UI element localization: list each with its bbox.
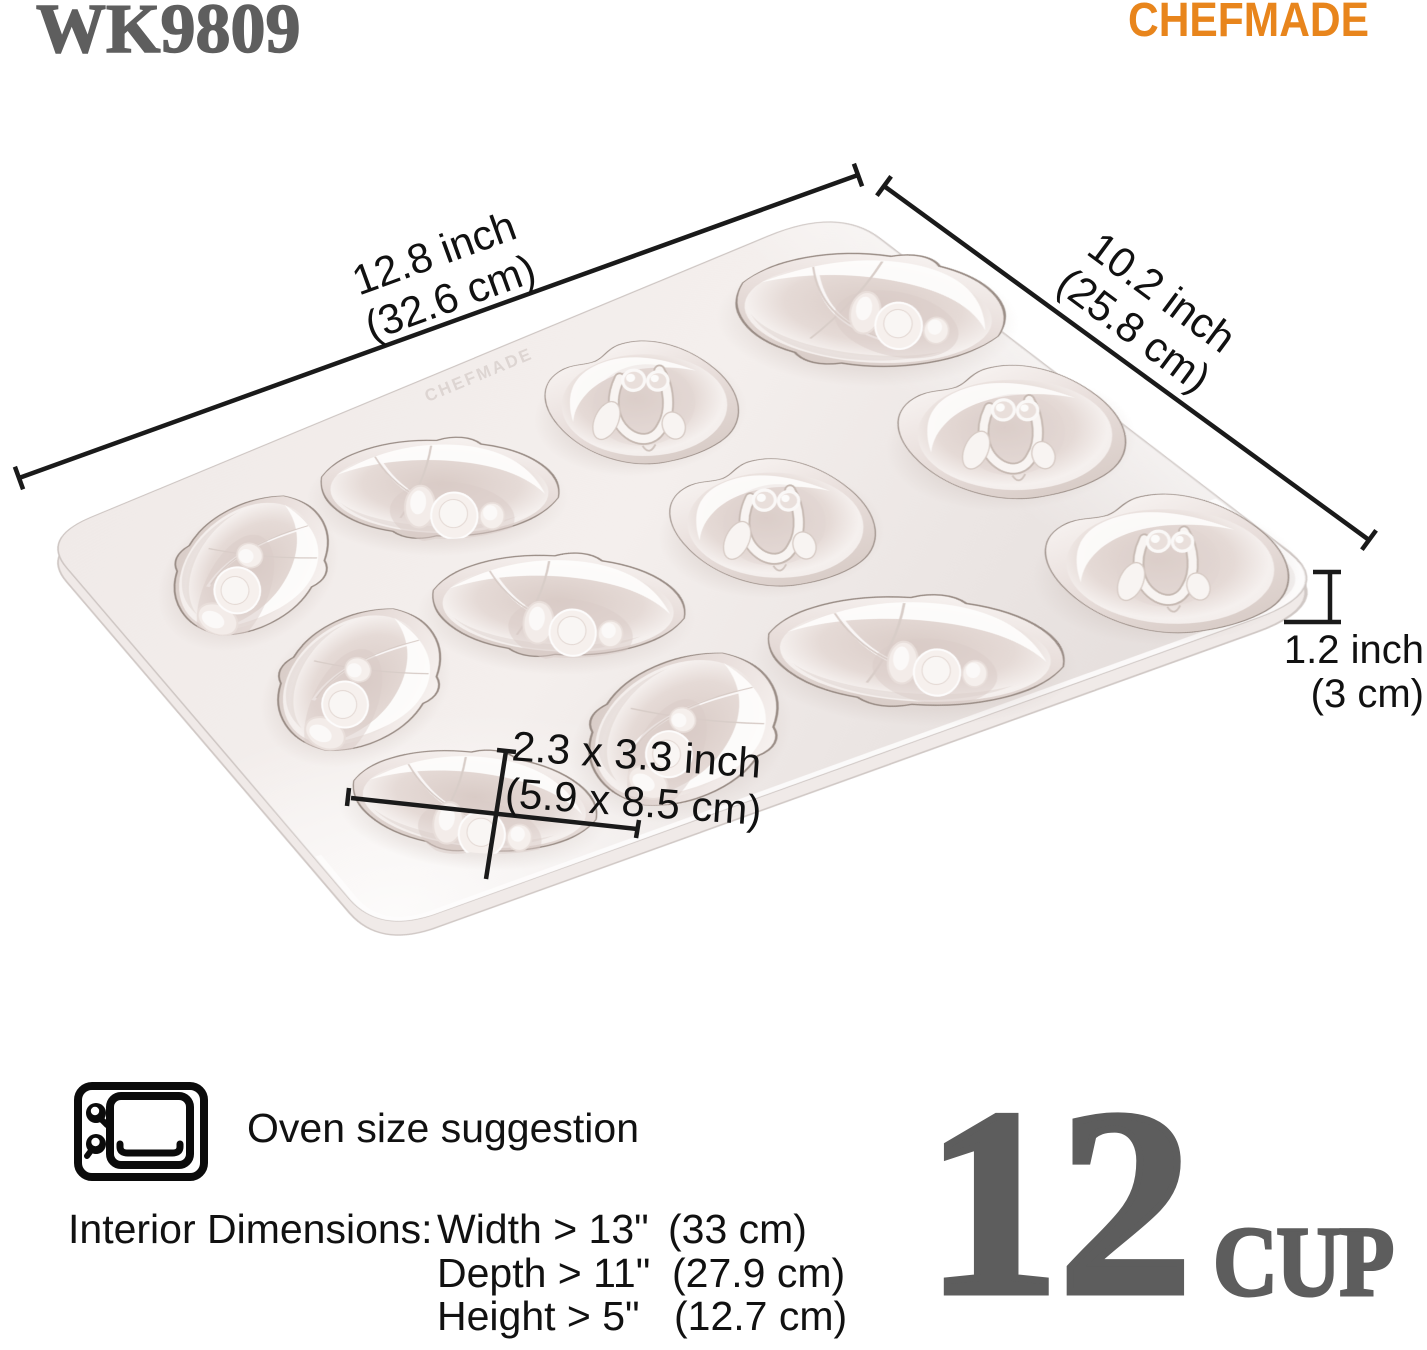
svg-text:CHEFMADE: CHEFMADE — [422, 344, 536, 406]
